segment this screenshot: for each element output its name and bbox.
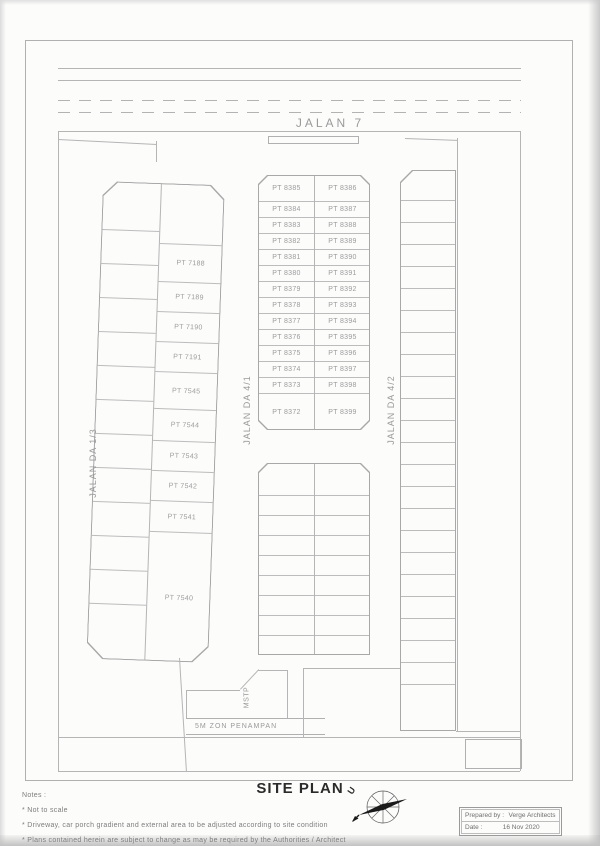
buffer-zone-band: 5M ZON PENAMPAN bbox=[186, 718, 325, 735]
lot-cell bbox=[401, 421, 456, 443]
lot-pt-7543: PT 7543 bbox=[152, 441, 216, 473]
lot-pt-8376: PT 8376 bbox=[259, 330, 314, 346]
lot-label: PT 8390 bbox=[328, 254, 356, 261]
lot-cell bbox=[401, 355, 456, 377]
road-jalan7-label: JALAN 7 bbox=[270, 116, 390, 130]
lot-label: PT 8394 bbox=[328, 318, 356, 325]
page-edge-top bbox=[0, 0, 600, 5]
lot-label: PT 7190 bbox=[174, 324, 203, 332]
lot-cell bbox=[401, 267, 456, 289]
lot-pt-8379: PT 8379 bbox=[259, 282, 314, 298]
lot-label: PT 8372 bbox=[272, 409, 300, 416]
lot-cell bbox=[401, 377, 456, 399]
lot-pt-8385: PT 8385 bbox=[259, 176, 314, 202]
guard-house-box bbox=[465, 739, 522, 769]
lot-label: PT 7189 bbox=[175, 294, 204, 302]
lot-label: PT 8389 bbox=[328, 238, 356, 245]
lot-label: PT 7545 bbox=[172, 387, 201, 395]
lot-cell bbox=[92, 502, 150, 538]
lot-cell bbox=[401, 597, 456, 619]
lot-cell bbox=[315, 556, 370, 576]
lot-pt-8387: PT 8387 bbox=[315, 202, 370, 218]
lot-label: PT 8399 bbox=[328, 409, 356, 416]
lot-label: PT 7191 bbox=[173, 354, 202, 362]
site-boundary-bottom-outer bbox=[58, 771, 520, 772]
lot-pt-8390: PT 8390 bbox=[315, 250, 370, 266]
lot-cell bbox=[401, 509, 456, 531]
lot-cell bbox=[160, 184, 225, 246]
lot-cell bbox=[401, 289, 456, 311]
boundary-seg-3 bbox=[456, 731, 520, 732]
lot-label: PT 8379 bbox=[272, 286, 300, 293]
lot-label: PT 8386 bbox=[328, 185, 356, 192]
prepared-by-value: Verge Architects bbox=[508, 812, 556, 819]
lot-pt-8378: PT 8378 bbox=[259, 298, 314, 314]
lot-cell bbox=[315, 496, 370, 516]
lot-cell bbox=[401, 311, 456, 333]
lot-pt-8386: PT 8386 bbox=[315, 176, 370, 202]
lot-cell bbox=[101, 230, 159, 266]
site-boundary-left bbox=[58, 131, 59, 771]
lot-cell bbox=[100, 264, 158, 300]
lot-column: PT 8385PT 8384PT 8383PT 8382PT 8381PT 83… bbox=[259, 176, 315, 429]
boundary-tick bbox=[156, 141, 157, 162]
street-jalan-da-1-3-label: JALAN DA 1/3 bbox=[88, 418, 98, 508]
page-edge-right bbox=[588, 0, 600, 846]
notes-heading: Notes : bbox=[22, 788, 346, 803]
lot-cell bbox=[95, 400, 153, 436]
lot-cell bbox=[94, 434, 152, 470]
lot-pt-8394: PT 8394 bbox=[315, 314, 370, 330]
lot-label: PT 8375 bbox=[272, 350, 300, 357]
lot-cell bbox=[401, 399, 456, 421]
lot-pt-7189: PT 7189 bbox=[157, 282, 221, 314]
lot-pt-7191: PT 7191 bbox=[155, 342, 219, 374]
lot-cell bbox=[401, 553, 456, 575]
frontage-notch-mid bbox=[268, 136, 359, 144]
lot-cell bbox=[89, 570, 147, 606]
lot-pt-8382: PT 8382 bbox=[259, 234, 314, 250]
buffer-zone-label: 5M ZON PENAMPAN bbox=[186, 723, 277, 730]
notes-block: Notes : * Not to scale * Driveway, car p… bbox=[22, 788, 346, 846]
date-value: 16 Nov 2020 bbox=[486, 824, 556, 831]
lot-label: PT 7542 bbox=[169, 482, 198, 490]
lot-pt-8377: PT 8377 bbox=[259, 314, 314, 330]
lot-cell bbox=[401, 443, 456, 465]
lot-cell bbox=[96, 366, 154, 402]
page-edge-left bbox=[0, 0, 6, 846]
lot-label: PT 8388 bbox=[328, 222, 356, 229]
lot-column bbox=[401, 171, 456, 730]
lot-cell bbox=[401, 465, 456, 487]
lot-pt-8397: PT 8397 bbox=[315, 362, 370, 378]
site-plan-sheet: JALAN 7 PT 7188PT 7189PT 7190PT 7191PT 7… bbox=[0, 0, 600, 846]
date-label: Date : bbox=[465, 824, 482, 831]
lot-cell bbox=[401, 333, 456, 355]
lot-pt-8392: PT 8392 bbox=[315, 282, 370, 298]
lot-cell bbox=[315, 636, 370, 656]
compass-north-label: U bbox=[346, 785, 357, 796]
lot-cell bbox=[315, 536, 370, 556]
lot-label: PT 8382 bbox=[272, 238, 300, 245]
street-jalan-da-4-2-label: JALAN DA 4/2 bbox=[386, 365, 396, 455]
lot-cell bbox=[259, 636, 314, 656]
open-area-left-line bbox=[303, 668, 304, 737]
lot-pt-7541: PT 7541 bbox=[150, 501, 214, 534]
lot-label: PT 8397 bbox=[328, 366, 356, 373]
mstp-top-left-line bbox=[186, 690, 240, 691]
lot-pt-7190: PT 7190 bbox=[156, 312, 220, 344]
lot-pt-8391: PT 8391 bbox=[315, 266, 370, 282]
lot-pt-8372: PT 8372 bbox=[259, 394, 314, 431]
lot-label: PT 8384 bbox=[272, 206, 300, 213]
lot-label: PT 8373 bbox=[272, 382, 300, 389]
lot-label: PT 8376 bbox=[272, 334, 300, 341]
lot-cell bbox=[315, 596, 370, 616]
site-boundary-bottom bbox=[58, 737, 520, 738]
lot-pt-8395: PT 8395 bbox=[315, 330, 370, 346]
open-area-top-line bbox=[303, 668, 400, 669]
lot-label: PT 8385 bbox=[272, 185, 300, 192]
note-line: * Plans contained herein are subject to … bbox=[22, 833, 346, 846]
lot-cell bbox=[401, 663, 456, 685]
date-row: Date : 16 Nov 2020 bbox=[462, 821, 559, 833]
lot-label: PT 8398 bbox=[328, 382, 356, 389]
lot-cell bbox=[259, 464, 314, 496]
lot-cell bbox=[401, 575, 456, 597]
lot-cell bbox=[315, 516, 370, 536]
mstp-right-line bbox=[287, 670, 288, 718]
lot-cell bbox=[98, 332, 156, 368]
lot-pt-8399: PT 8399 bbox=[315, 394, 370, 431]
lot-cell bbox=[259, 556, 314, 576]
prepared-by-row: Prepared by : Verge Architects bbox=[462, 810, 559, 821]
lot-pt-7544: PT 7544 bbox=[153, 409, 217, 443]
lot-pt-8384: PT 8384 bbox=[259, 202, 314, 218]
lot-column: PT 8386PT 8387PT 8388PT 8389PT 8390PT 83… bbox=[315, 176, 370, 429]
lot-cell bbox=[102, 182, 161, 232]
lot-cell bbox=[401, 223, 456, 245]
lot-pt-8389: PT 8389 bbox=[315, 234, 370, 250]
lot-pt-7540: PT 7540 bbox=[145, 532, 212, 664]
mstp-top-line bbox=[258, 670, 287, 671]
lot-cell bbox=[401, 487, 456, 509]
lot-label: PT 8393 bbox=[328, 302, 356, 309]
lot-cell bbox=[259, 596, 314, 616]
lot-pt-7188: PT 7188 bbox=[159, 244, 223, 284]
lot-pt-7542: PT 7542 bbox=[151, 471, 215, 503]
lot-label: PT 7541 bbox=[167, 513, 196, 521]
lower-lot-block bbox=[258, 463, 370, 655]
note-line: * Driveway, car porch gradient and exter… bbox=[22, 818, 346, 833]
lot-label: PT 8378 bbox=[272, 302, 300, 309]
lot-pt-8373: PT 8373 bbox=[259, 378, 314, 394]
street-jalan-da-4-1-label: JALAN DA 4/1 bbox=[242, 365, 252, 455]
lot-cell bbox=[315, 464, 370, 496]
lot-label: PT 8387 bbox=[328, 206, 356, 213]
lot-pt-8396: PT 8396 bbox=[315, 346, 370, 362]
lot-cell bbox=[259, 516, 314, 536]
road-top-edge bbox=[58, 68, 521, 69]
lot-column bbox=[259, 464, 315, 654]
lot-cell bbox=[99, 298, 157, 334]
lot-label: PT 7543 bbox=[170, 452, 199, 460]
lot-cell bbox=[315, 576, 370, 596]
lot-label: PT 7544 bbox=[171, 422, 200, 430]
road-bottom-edge bbox=[58, 131, 521, 132]
lot-cell bbox=[259, 536, 314, 556]
lot-label: PT 8396 bbox=[328, 350, 356, 357]
lot-cell bbox=[401, 641, 456, 663]
prepared-by-label: Prepared by : bbox=[465, 812, 504, 819]
lot-cell bbox=[315, 616, 370, 636]
lot-pt-7545: PT 7545 bbox=[154, 372, 218, 411]
lot-label: PT 8374 bbox=[272, 366, 300, 373]
lot-pt-8381: PT 8381 bbox=[259, 250, 314, 266]
road-centerline-2 bbox=[58, 112, 521, 113]
lot-pt-8383: PT 8383 bbox=[259, 218, 314, 234]
lot-label: PT 7540 bbox=[165, 594, 194, 602]
lot-column bbox=[315, 464, 370, 654]
lot-label: PT 8377 bbox=[272, 318, 300, 325]
lot-cell bbox=[259, 616, 314, 636]
lot-cell bbox=[259, 576, 314, 596]
site-boundary-right bbox=[520, 131, 521, 771]
lot-label: PT 8383 bbox=[272, 222, 300, 229]
lot-label: PT 8395 bbox=[328, 334, 356, 341]
lot-pt-8374: PT 8374 bbox=[259, 362, 314, 378]
lot-label: PT 7188 bbox=[176, 260, 205, 268]
note-line: * Not to scale bbox=[22, 803, 346, 818]
lot-cell bbox=[401, 201, 456, 223]
middle-lot-strip: PT 8385PT 8384PT 8383PT 8382PT 8381PT 83… bbox=[258, 175, 370, 430]
title-block: Prepared by : Verge Architects Date : 16… bbox=[459, 807, 562, 836]
lot-label: PT 8381 bbox=[272, 254, 300, 261]
lot-cell bbox=[259, 496, 314, 516]
lot-label: PT 8380 bbox=[272, 270, 300, 277]
lot-cell bbox=[401, 171, 456, 201]
compass-rose-icon: U bbox=[346, 779, 420, 837]
left-lot-strip: PT 7188PT 7189PT 7190PT 7191PT 7545PT 75… bbox=[86, 181, 225, 663]
mstp-label: MSTP bbox=[244, 683, 251, 713]
lot-pt-8375: PT 8375 bbox=[259, 346, 314, 362]
lot-pt-8388: PT 8388 bbox=[315, 218, 370, 234]
lot-pt-8393: PT 8393 bbox=[315, 298, 370, 314]
right-lot-strip bbox=[400, 170, 456, 731]
lot-cell bbox=[401, 619, 456, 641]
street-edge-right bbox=[457, 138, 458, 731]
lot-label: PT 8392 bbox=[328, 286, 356, 293]
lot-cell bbox=[401, 685, 456, 732]
lot-cell bbox=[93, 468, 151, 504]
lot-label: PT 8391 bbox=[328, 270, 356, 277]
lot-cell bbox=[401, 245, 456, 267]
lot-pt-8380: PT 8380 bbox=[259, 266, 314, 282]
lot-cell bbox=[401, 531, 456, 553]
lot-pt-8398: PT 8398 bbox=[315, 378, 370, 394]
road-inner-edge bbox=[58, 80, 521, 81]
mstp-left-line bbox=[186, 690, 187, 718]
road-centerline-1 bbox=[58, 100, 521, 101]
lot-cell bbox=[90, 536, 148, 572]
